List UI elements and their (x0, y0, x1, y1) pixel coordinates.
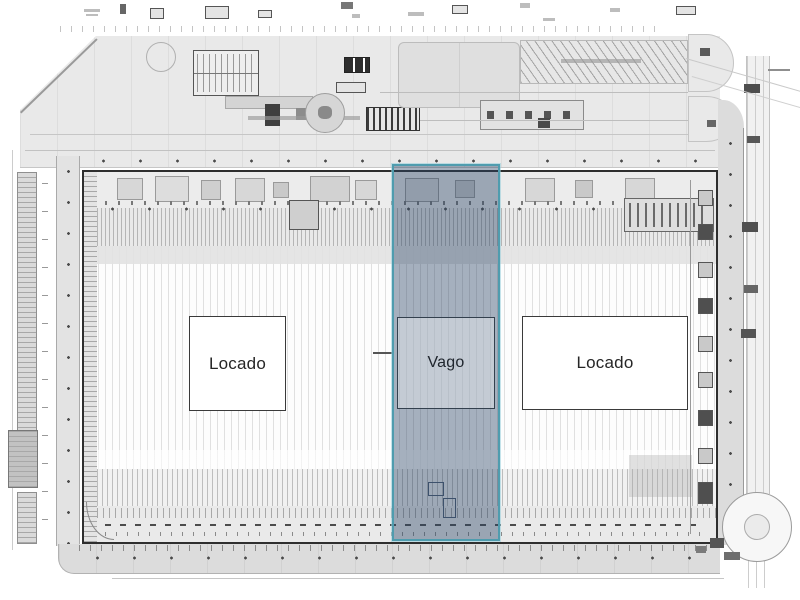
east-wall-room (698, 190, 713, 206)
boundary-line-south (112, 578, 724, 579)
small-structure (700, 48, 710, 56)
unit-label-middle-text: Vago (428, 354, 465, 372)
office-block (235, 178, 265, 202)
street-structure (741, 329, 756, 338)
east-wall-room (698, 372, 713, 388)
east-wall-room (698, 298, 713, 314)
annotation-smudge (205, 6, 229, 19)
east-wall-room (698, 448, 713, 464)
north-yard (20, 36, 720, 168)
office-block (525, 178, 555, 202)
public-street-south (748, 558, 768, 588)
support-building (480, 100, 584, 130)
unit-label-right: Locado (522, 316, 688, 410)
utility-block (336, 82, 366, 93)
junction-structure (710, 538, 724, 548)
boundary-line-west (12, 150, 13, 550)
utility-block (344, 57, 370, 73)
mezzanine-hatch (629, 203, 709, 227)
office-block (273, 182, 289, 198)
dock-canopy-block (366, 107, 420, 131)
south-road-ticks (79, 545, 709, 551)
field-centerline (459, 43, 460, 107)
annotation-smudge (543, 18, 555, 21)
unit-label-left-text: Locado (209, 354, 266, 374)
west-tick-column (42, 180, 48, 520)
dimension-dash (373, 352, 393, 354)
annotation-smudge (86, 14, 98, 16)
survey-tick-row (60, 26, 660, 32)
annotation-smudge (150, 8, 164, 19)
east-wall-room (698, 336, 713, 352)
south-road (58, 544, 720, 574)
outbuilding (193, 50, 259, 96)
office-block (310, 176, 350, 202)
office-block (355, 180, 377, 200)
road-line (30, 134, 718, 135)
gatehouse (265, 104, 280, 126)
public-street (746, 56, 770, 494)
west-utility-block (8, 430, 38, 488)
annotation-smudge (352, 14, 360, 18)
south-road-dots (79, 554, 709, 562)
annotation-smudge (408, 12, 424, 16)
cul-de-sac-island (744, 514, 770, 540)
street-structure (744, 285, 758, 293)
annotation-smudge (676, 6, 696, 15)
annotation-smudge (520, 3, 530, 8)
road-line (420, 120, 692, 121)
junction-structure (724, 552, 740, 560)
east-corridor-line (690, 180, 691, 534)
street-structure (747, 136, 760, 143)
east-wall-room (698, 224, 713, 240)
office-block (575, 180, 593, 198)
small-structure (707, 120, 716, 127)
pond-island (318, 106, 332, 119)
sports-field (398, 42, 520, 108)
annotation-smudge (452, 5, 468, 14)
office-block (625, 178, 655, 200)
junction-structure (696, 546, 706, 553)
street-structure (742, 222, 758, 232)
annotation-smudge (258, 10, 272, 18)
west-wall-strip (84, 172, 97, 542)
east-wall-room (698, 482, 713, 504)
west-service-road (56, 156, 80, 546)
office-block (117, 178, 143, 200)
west-parking-strip (17, 172, 37, 444)
plant-room (289, 200, 319, 230)
entrance-curve (146, 42, 176, 72)
east-wall-room (698, 262, 713, 278)
unit-label-middle: Vago (397, 317, 495, 409)
annotation-smudge (120, 4, 126, 14)
curved-road-lobe (688, 34, 734, 92)
angled-parking-row (520, 40, 688, 84)
survey-dash (768, 69, 790, 71)
dense-storage-patch (629, 455, 692, 497)
office-block (201, 180, 221, 200)
west-parking-strip (17, 492, 37, 544)
annotation-smudge (84, 9, 100, 12)
parking-label-smudge (561, 59, 641, 63)
office-block (155, 176, 189, 202)
unit-label-right-text: Locado (577, 353, 634, 373)
warehouse-site-plan: Locado Vago Locado (0, 0, 800, 600)
road-line (380, 92, 688, 93)
east-wall-room (698, 410, 713, 426)
outbuilding-divider (194, 73, 258, 74)
support-building-bays (487, 111, 579, 119)
unit-label-left: Locado (189, 316, 286, 411)
annotation-smudge (610, 8, 620, 12)
annotation-smudge (341, 2, 353, 9)
road-line (25, 150, 715, 151)
